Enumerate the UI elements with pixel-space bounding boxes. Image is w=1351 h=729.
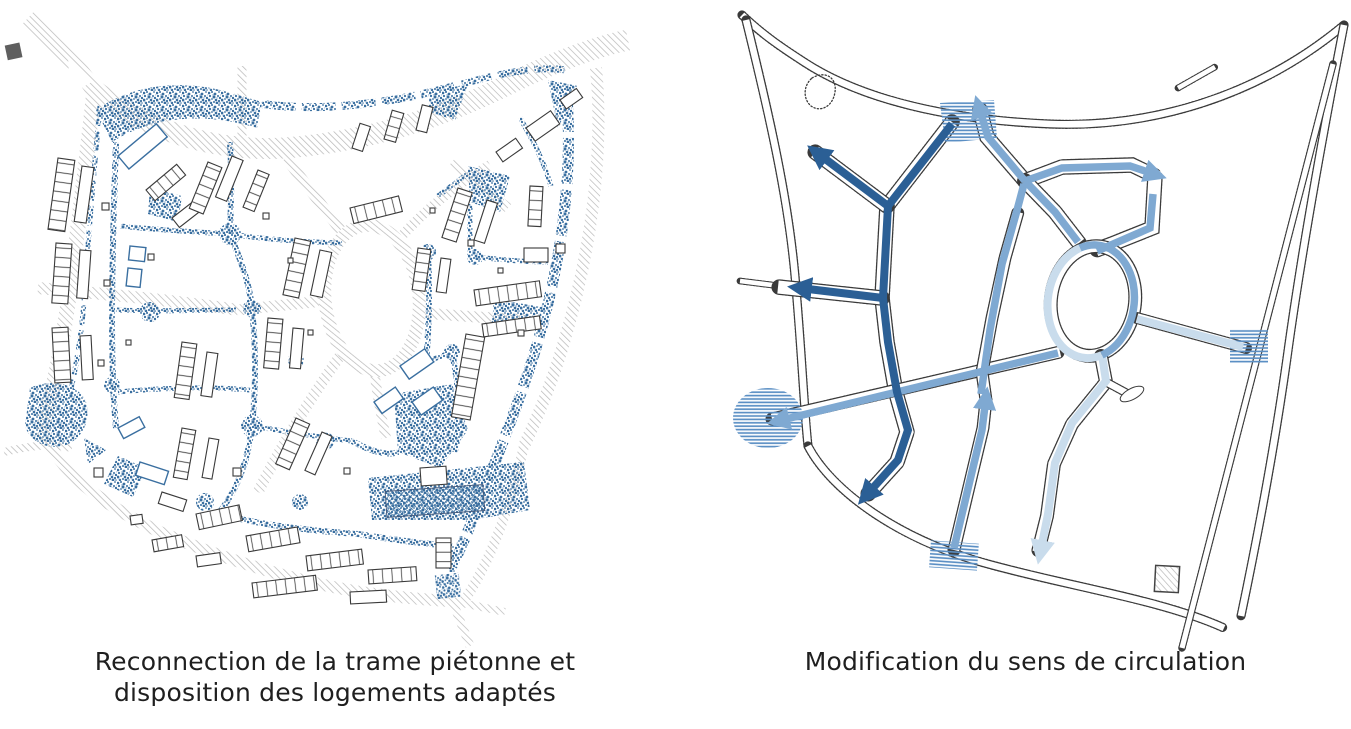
building [474,200,497,243]
building [524,248,548,262]
building [306,549,363,571]
building [246,527,300,552]
building [196,553,221,567]
figure-page: Reconnection de la trame piétonne et dis… [0,0,1351,729]
building [350,196,402,224]
building [52,243,72,304]
building [436,538,451,568]
building [283,238,311,298]
building [174,342,197,400]
building [368,567,417,584]
building [80,335,93,380]
caption-line: Modification du sens de circulation [700,646,1351,677]
building [130,514,143,525]
small-square-building [1154,565,1179,592]
caption-line: disposition des logements adaptés [25,677,645,708]
caption-pedestrian-map: Reconnection de la trame piétonne et dis… [25,646,645,708]
building [189,162,222,214]
caption-circulation-map: Modification du sens de circulation [700,646,1351,677]
building [252,575,317,598]
building [48,158,75,232]
building [129,246,146,262]
circulation-map [733,15,1344,648]
building [118,417,145,439]
building [528,186,543,227]
building [496,138,523,162]
building [420,466,447,486]
building [152,535,184,552]
building [202,438,219,479]
flow-light-east-spur [1137,319,1243,347]
building [173,428,195,480]
corner-building [5,42,23,60]
flow-strong-northwest-branch [824,158,888,206]
building [136,462,169,485]
flow-medium-central-lower [954,406,985,548]
plaza-west [25,383,87,447]
flow-medium-west-exit [786,353,1058,419]
building [436,258,451,293]
building [264,318,283,369]
building [126,268,142,287]
building [243,170,269,212]
caption-line: Reconnection de la trame piétonne et [25,646,645,677]
building [216,156,244,201]
flow-medium-to-roundabout [1025,181,1078,242]
building [350,590,387,604]
building [52,327,71,383]
urban-plan-figure [0,0,1351,729]
building [416,105,433,133]
building [158,492,186,511]
pedestrian-map [4,18,628,646]
